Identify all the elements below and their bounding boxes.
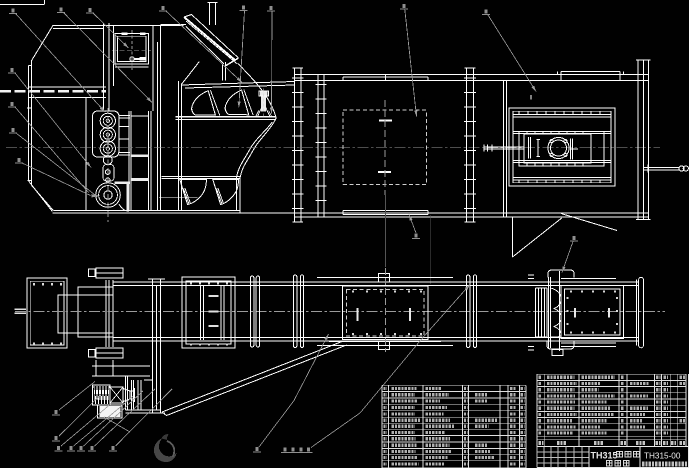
svg-text:TH315-00: TH315-00 [644, 452, 681, 461]
svg-text:TH315: TH315 [591, 451, 618, 461]
